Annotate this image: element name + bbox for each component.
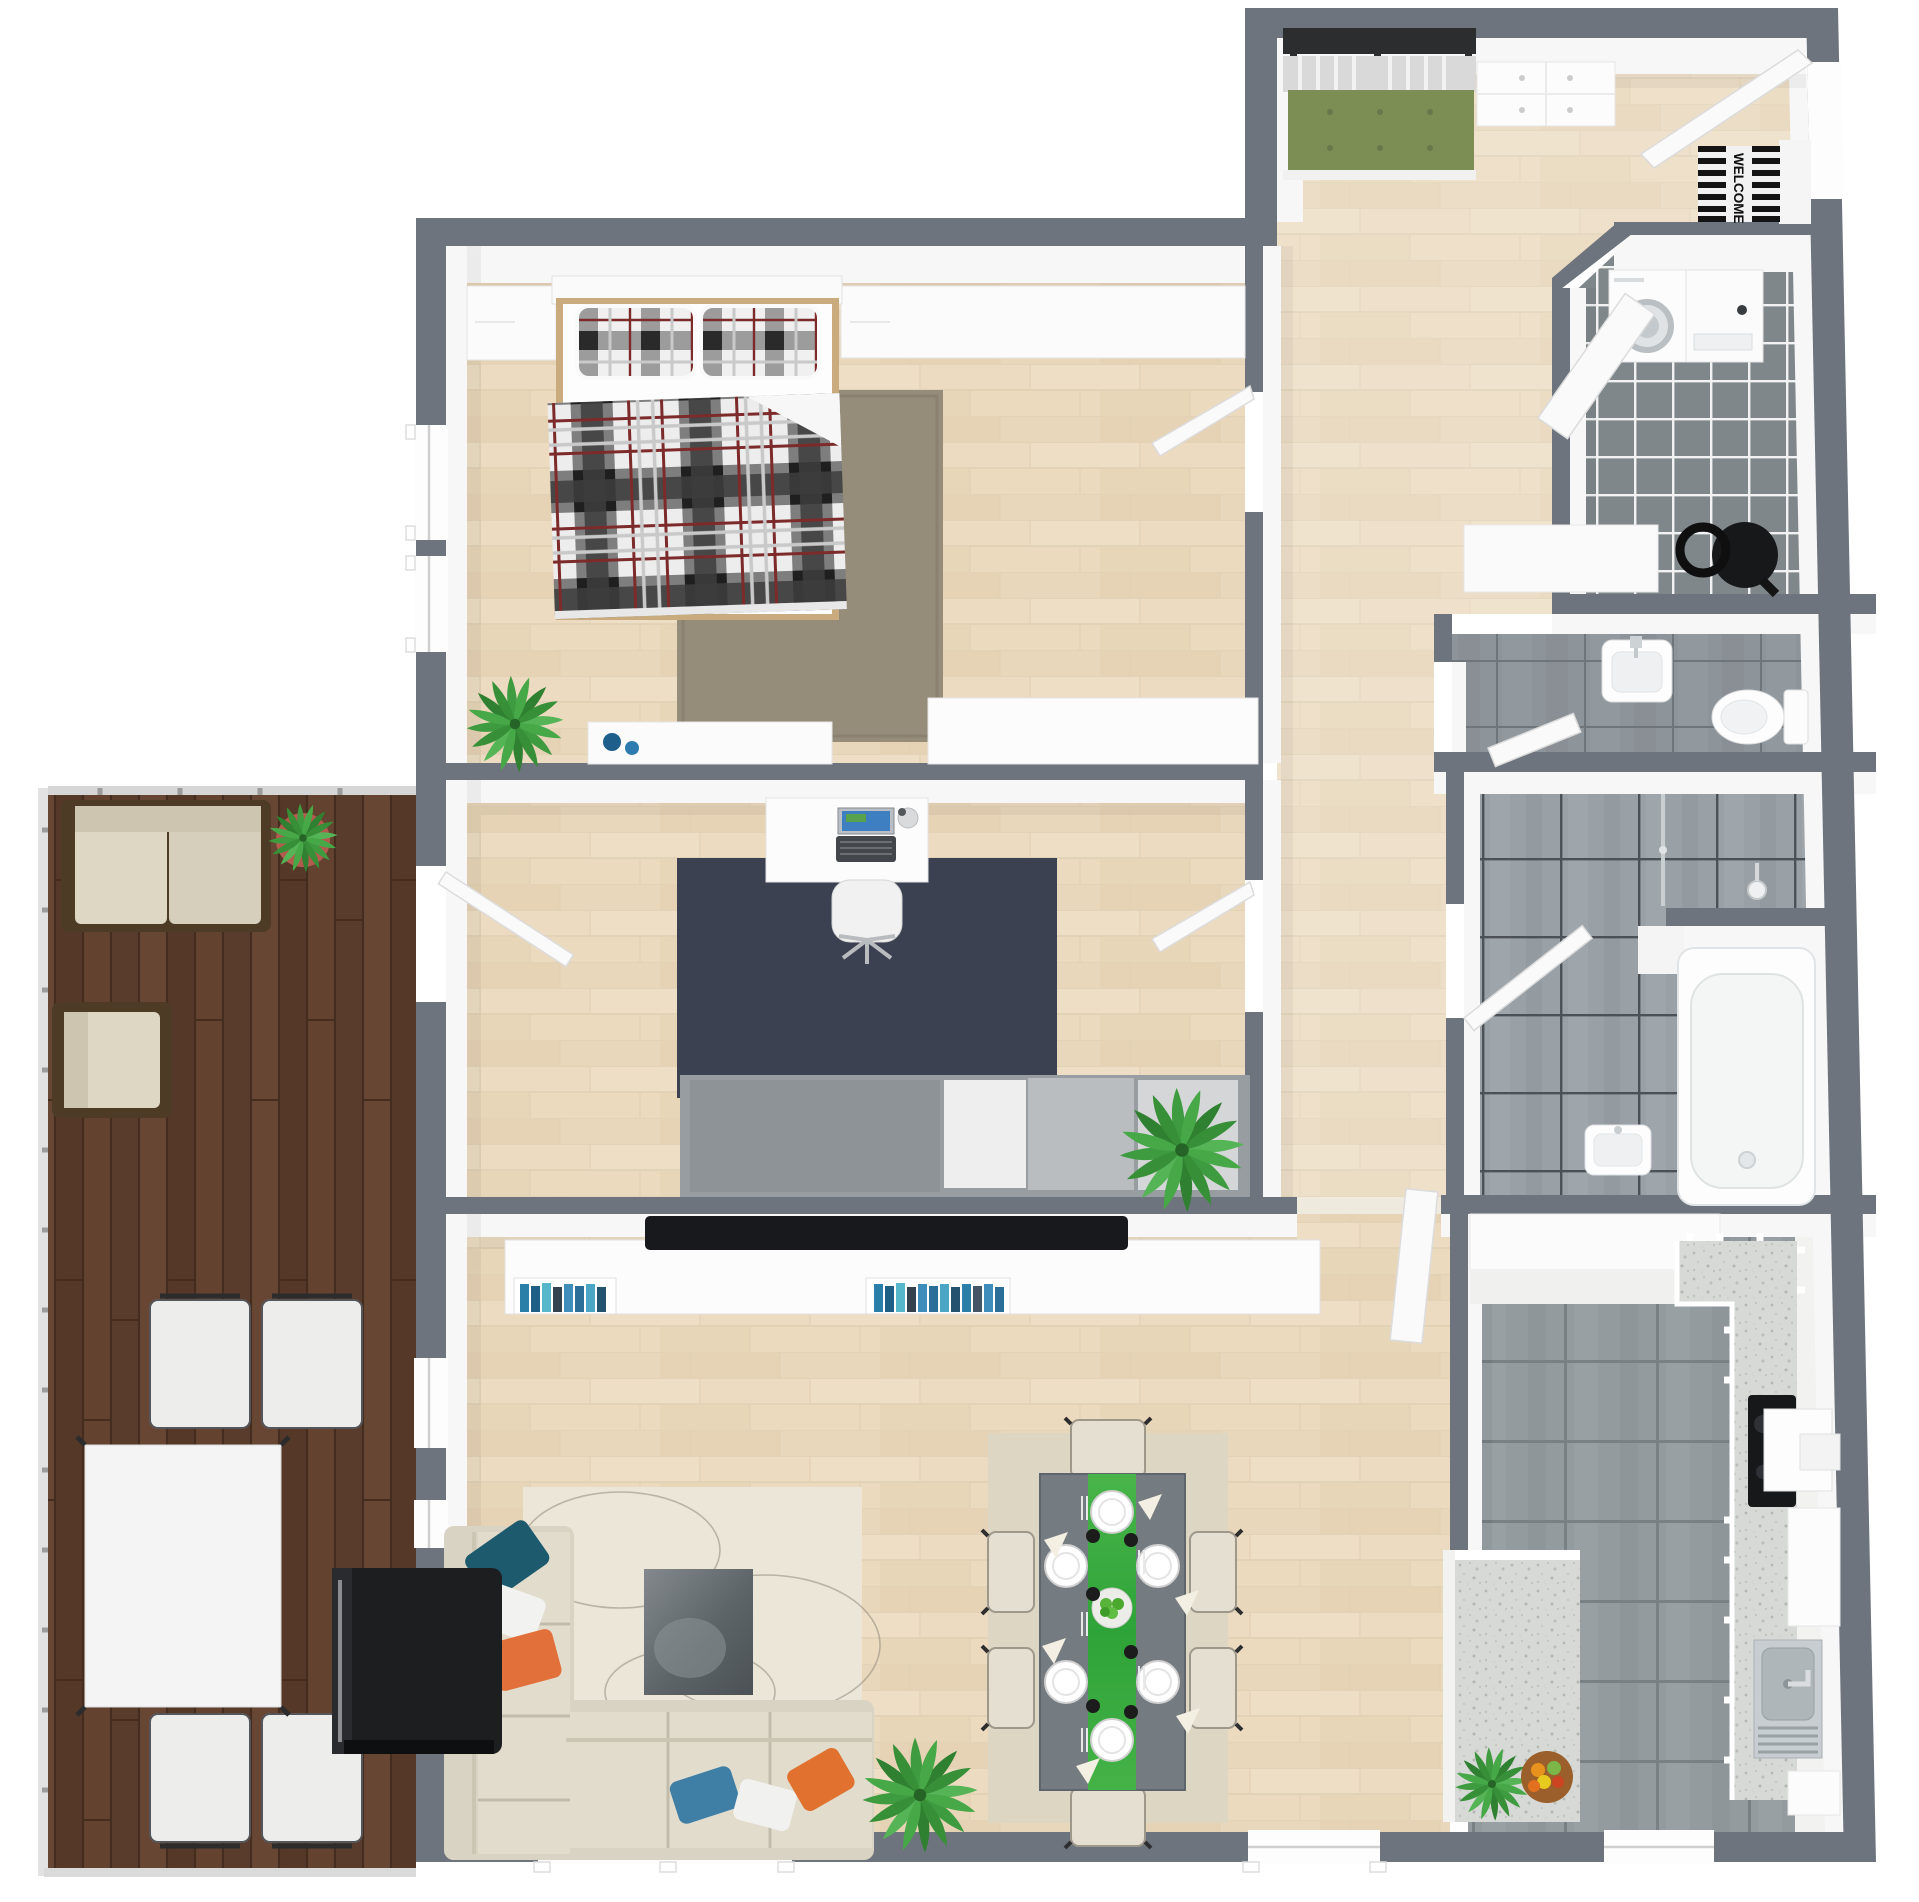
svg-text:WELCOME: WELCOME <box>1731 153 1746 224</box>
